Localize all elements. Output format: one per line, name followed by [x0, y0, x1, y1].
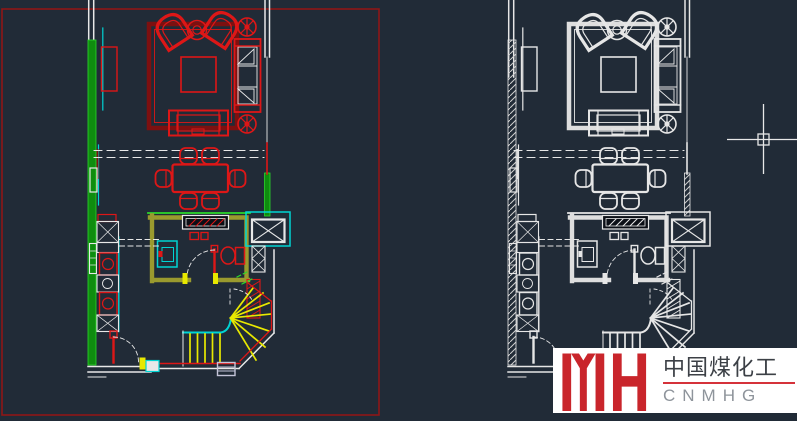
- watermark-underline: [663, 382, 795, 384]
- watermark-subtitle: CNMHG: [663, 386, 795, 406]
- watermark-logo: 中国煤化工 CNMHG: [553, 348, 797, 413]
- floor-plan-monochrome[interactable]: [508, 0, 710, 377]
- cad-model-space[interactable]: 中国煤化工 CNMHG: [0, 0, 797, 421]
- watermark-title: 中国煤化工: [663, 355, 795, 381]
- floor-plan-colored[interactable]: [88, 0, 290, 377]
- logo-letters-yh: [559, 350, 653, 411]
- crosshair-cursor: [727, 104, 797, 174]
